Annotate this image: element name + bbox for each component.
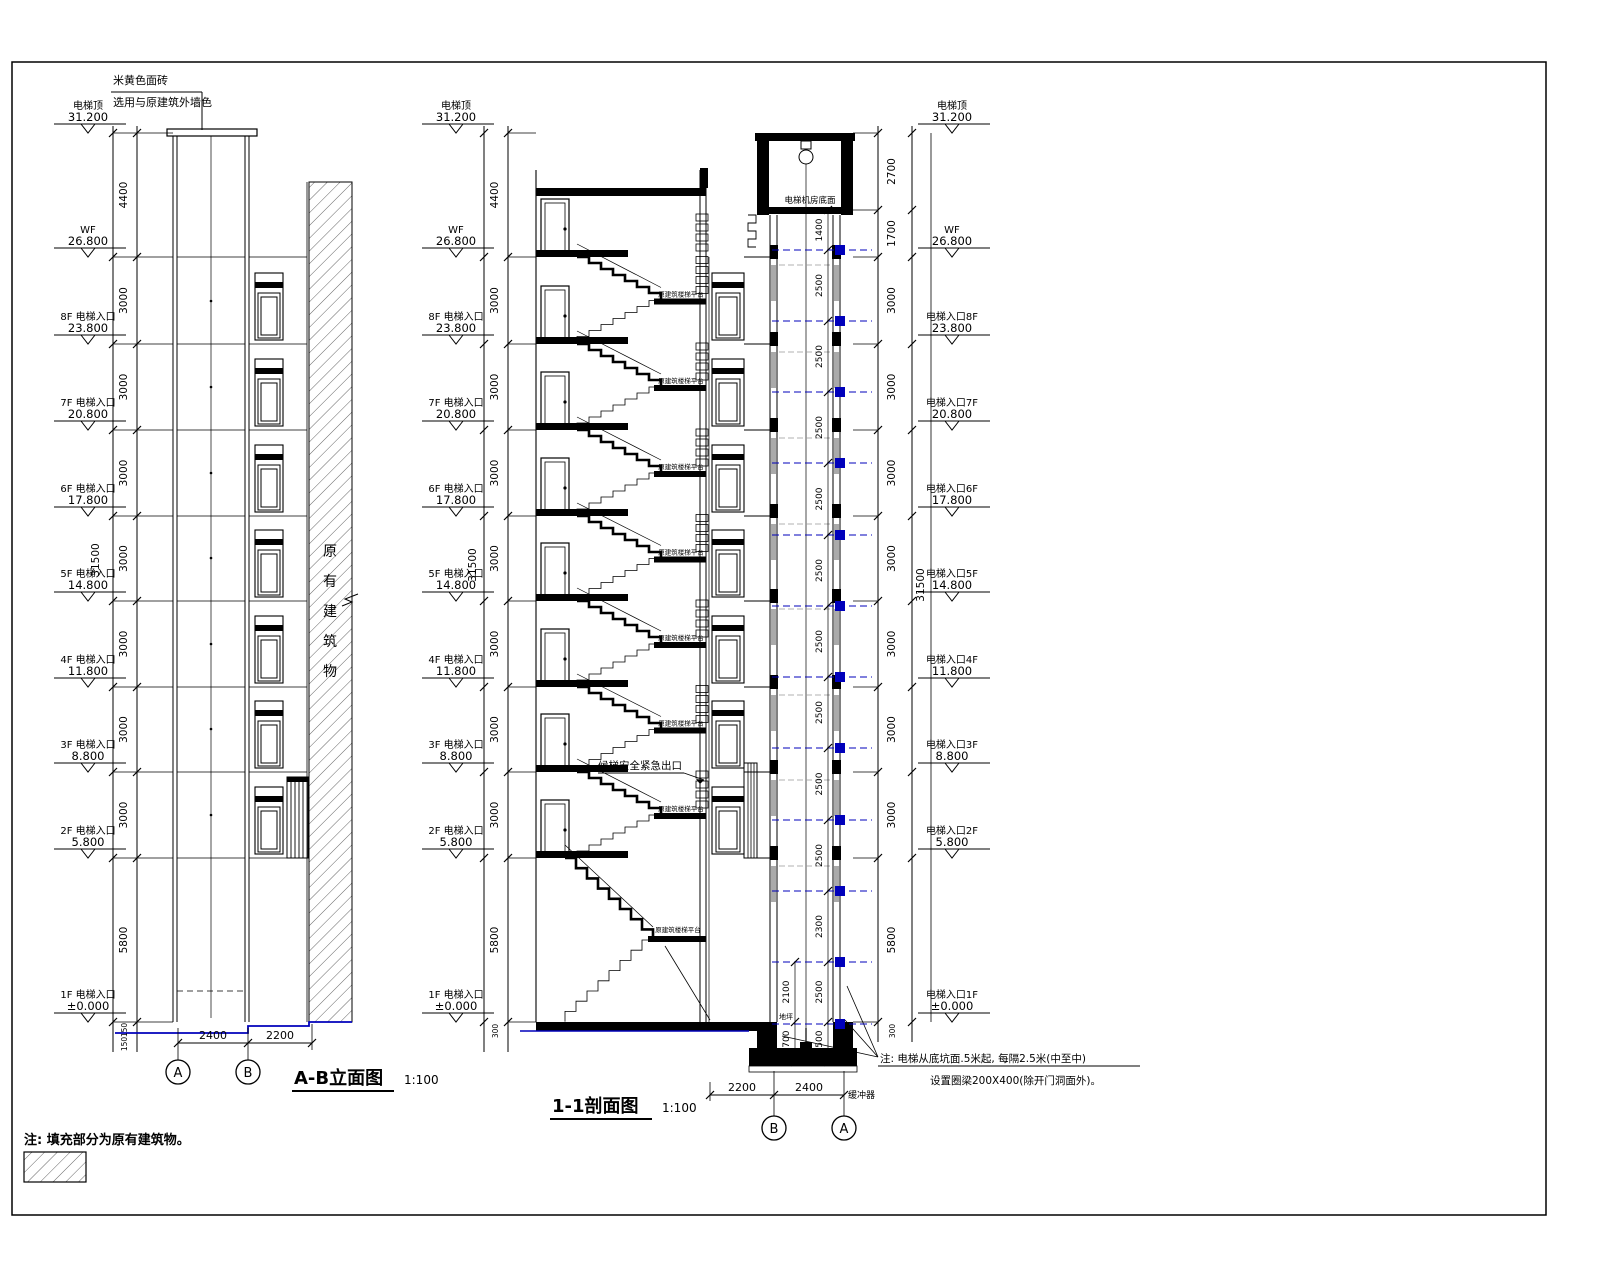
level-value: 31.200 [436, 110, 476, 124]
dim-value: 3000 [886, 374, 898, 401]
shaft-dim: 2500 [815, 559, 825, 582]
shaft-dim: 2500 [815, 701, 825, 724]
landing-label: 原建筑楼梯平台 [658, 633, 704, 642]
total-dim: 31500 [90, 543, 102, 576]
level-name: 电梯入口6F [926, 482, 978, 495]
shaft-dim: 2500 [815, 630, 825, 653]
small-dim: 300 [888, 1024, 897, 1039]
total-dim: 31500 [915, 568, 927, 601]
dim-value: 5800 [118, 927, 130, 954]
shaft-dim: 2500 [815, 416, 825, 439]
small-dim: 150 [120, 1023, 129, 1038]
dim-value: 3000 [886, 460, 898, 487]
legend-hatch-swatch [24, 1152, 86, 1182]
grid-letter-b: B [244, 1066, 253, 1081]
dim-value: 2700 [886, 158, 898, 185]
sheet-border [12, 62, 1546, 1215]
level-name: 电梯顶 [73, 99, 103, 112]
small-dim: 300 [491, 1024, 500, 1039]
level-name: 3F 电梯入口 [428, 738, 483, 751]
level-value: 26.800 [436, 234, 476, 248]
existing-building-label: 筑 [323, 634, 337, 650]
dim-value: 3000 [886, 716, 898, 743]
dim-value: 3000 [489, 802, 501, 829]
hoist-hook [801, 141, 811, 149]
level-value: ±0.000 [435, 999, 478, 1013]
section-scale: 1:100 [662, 1101, 697, 1115]
dim-value: 3000 [118, 287, 130, 314]
level-name: WF [944, 225, 960, 236]
legend: 注: 填充部分为原有建筑物。 [24, 1132, 190, 1182]
shaft-pit [749, 1022, 857, 1072]
dim-value: 3000 [489, 545, 501, 572]
level-name: 3F 电梯入口 [60, 738, 115, 751]
level-value: 11.800 [932, 664, 972, 678]
dim-value: 3000 [118, 460, 130, 487]
shaft-dim: 2500 [815, 345, 825, 368]
level-value: 23.800 [68, 321, 108, 335]
level-name: 1F 电梯入口 [428, 988, 483, 1001]
level-value: 20.800 [68, 407, 108, 421]
dim-value: 3000 [489, 374, 501, 401]
ground-line [115, 1022, 352, 1033]
level-value: ±0.000 [931, 999, 974, 1013]
shaft-dim: 2500 [815, 274, 825, 297]
small-dim: 150 [120, 1037, 129, 1052]
level-value: 5.800 [72, 835, 105, 849]
elevation-drawing: 米黄色面砖 选用与原建筑外墙色 2400 2200 A B A-B立面 [111, 73, 439, 1091]
level-name: 1F 电梯入口 [60, 988, 115, 1001]
dim-value: 3000 [118, 802, 130, 829]
shaft-dim: 2500 [815, 980, 825, 1003]
grid-letter-a: A [174, 1066, 183, 1081]
elev-dim-2400: 2400 [199, 1029, 227, 1042]
dim-value: 4400 [489, 182, 501, 209]
level-name: 电梯入口3F [926, 738, 978, 751]
existing-building-hatch [309, 182, 352, 1022]
dim-value: 1700 [886, 220, 898, 247]
level-value: 23.800 [436, 321, 476, 335]
level-value: 17.800 [68, 493, 108, 507]
dim-value: 3000 [489, 716, 501, 743]
generated-geometry: 31.200电梯顶26.800WF23.8008F 电梯入口20.8007F 电… [54, 99, 990, 1099]
landing-label: 原建筑楼梯平台 [658, 719, 704, 728]
dim-value: 3000 [118, 374, 130, 401]
level-name: 8F 电梯入口 [60, 310, 115, 323]
pulley-icon [799, 150, 813, 164]
shaft-dim: 1500 [815, 1030, 825, 1053]
sect-dim-2400: 2400 [795, 1081, 823, 1094]
shaft-dim: 2500 [815, 772, 825, 795]
dim-value: 3000 [886, 545, 898, 572]
level-value: 8.800 [440, 749, 473, 763]
drawing-sheet: 米黄色面砖 选用与原建筑外墙色 2400 2200 A B A-B立面 [0, 0, 1600, 1280]
sect-dim-2200: 2200 [728, 1081, 756, 1094]
grid-letter-b2: B [770, 1122, 779, 1137]
elev-dim-2200: 2200 [266, 1029, 294, 1042]
total-dim: 31500 [467, 548, 479, 581]
level-name: 电梯入口4F [926, 653, 978, 666]
existing-building-label: 有 [323, 574, 337, 590]
existing-building-label: 原 [323, 544, 337, 560]
level-name: 电梯入口5F [926, 567, 978, 580]
level-name: WF [448, 225, 464, 236]
level-value: ±0.000 [67, 999, 110, 1013]
cad-canvas: 米黄色面砖 选用与原建筑外墙色 2400 2200 A B A-B立面 [0, 0, 1600, 1280]
level-name: 电梯顶 [441, 99, 471, 112]
machine-room-label: 电梯机房底面 [784, 195, 836, 206]
grid-letter-a2: A [840, 1122, 849, 1137]
level-name: 7F 电梯入口 [428, 396, 483, 409]
access-ladder [748, 215, 756, 247]
level-value: 31.200 [932, 110, 972, 124]
level-value: 20.800 [436, 407, 476, 421]
level-name: 6F 电梯入口 [428, 482, 483, 495]
level-value: 17.800 [436, 493, 476, 507]
level-value: 14.800 [68, 578, 108, 592]
level-name: 电梯入口7F [926, 396, 978, 409]
dim-value: 5800 [489, 927, 501, 954]
dim-value: 3000 [489, 460, 501, 487]
elevation-scale: 1:100 [404, 1073, 439, 1087]
level-value: 26.800 [932, 234, 972, 248]
legend-note: 注: 填充部分为原有建筑物。 [24, 1132, 190, 1148]
level-name: 4F 电梯入口 [60, 653, 115, 666]
level-value: 17.800 [932, 493, 972, 507]
level-name: 2F 电梯入口 [428, 824, 483, 837]
ground-label: 地坪 [779, 1012, 793, 1021]
landing-label: 原建筑楼梯平台 [658, 376, 704, 385]
level-name: 电梯入口1F [926, 988, 978, 1001]
level-value: 20.800 [932, 407, 972, 421]
level-name: 5F 电梯入口 [60, 567, 115, 580]
landing-label: 原建筑楼梯平台 [658, 462, 704, 471]
landing-label: 原建筑楼梯平台 [658, 548, 704, 557]
level-name: 电梯入口8F [926, 310, 978, 323]
dim-value: 3000 [886, 631, 898, 658]
level-name: 8F 电梯入口 [428, 310, 483, 323]
landing-label: 原建筑楼梯平台 [658, 804, 704, 813]
level-value: 5.800 [440, 835, 473, 849]
level-value: 8.800 [936, 749, 969, 763]
level-name: 电梯入口2F [926, 824, 978, 837]
buffer-label: 缓冲器 [848, 1089, 875, 1101]
shaft-dim: 2500 [815, 487, 825, 510]
landing-label: 原建筑楼梯平台 [655, 925, 701, 934]
dim-value: 3000 [489, 287, 501, 314]
elevation-title: A-B立面图 [294, 1067, 383, 1089]
level-value: 11.800 [68, 664, 108, 678]
dim-value: 3000 [886, 287, 898, 314]
level-value: 31.200 [68, 110, 108, 124]
dim-value: 3000 [118, 716, 130, 743]
existing-building-label: 建 [323, 604, 337, 620]
level-name: WF [80, 225, 96, 236]
dim-value: 3000 [118, 545, 130, 572]
level-value: 26.800 [68, 234, 108, 248]
dim-value: 5800 [886, 927, 898, 954]
level-name: 6F 电梯入口 [60, 482, 115, 495]
dim-value: 3000 [886, 802, 898, 829]
section-drawing: 电梯机房底面 地坪 注: 电梯从底坑面.5米起, 每隔2.5米(中至中) 设置圈… [484, 126, 1140, 1140]
material-note-line1: 米黄色面砖 [113, 73, 168, 87]
shaft-dim: 2100 [782, 980, 792, 1003]
landing-label: 原建筑楼梯平台 [658, 290, 704, 299]
level-name: 7F 电梯入口 [60, 396, 115, 409]
level-value: 14.800 [932, 578, 972, 592]
shaft-dim: 1400 [815, 218, 825, 241]
section-note-line1: 注: 电梯从底坑面.5米起, 每隔2.5米(中至中) [880, 1052, 1086, 1065]
section-title: 1-1剖面图 [552, 1095, 639, 1117]
dim-value: 3000 [118, 631, 130, 658]
level-name: 电梯顶 [937, 99, 967, 112]
dim-value: 4400 [118, 182, 130, 209]
dim-value: 3000 [489, 631, 501, 658]
level-value: 11.800 [436, 664, 476, 678]
level-value: 5.800 [936, 835, 969, 849]
material-note-line2: 选用与原建筑外墙色 [113, 95, 212, 109]
level-value: 8.800 [72, 749, 105, 763]
shaft-dim: 2500 [815, 844, 825, 867]
shaft-dim: 2300 [815, 915, 825, 938]
level-name: 4F 电梯入口 [428, 653, 483, 666]
level-value: 23.800 [932, 321, 972, 335]
section-note-line2: 设置圈梁200X400(除开门洞面外)。 [930, 1074, 1101, 1087]
existing-building-label: 物 [323, 664, 337, 680]
level-name: 2F 电梯入口 [60, 824, 115, 837]
shaft-dim: 1700 [782, 1030, 792, 1053]
buffer-block [800, 1042, 812, 1048]
